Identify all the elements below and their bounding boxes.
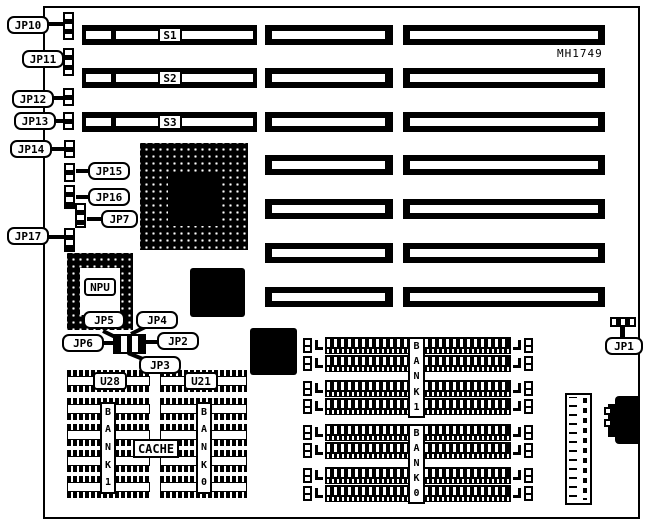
simm-bracket-right (513, 445, 521, 455)
vertical-label-char: N (201, 443, 207, 453)
simm-latch-left (303, 399, 312, 414)
vertical-label-char: N (413, 459, 419, 469)
vertical-label-char: N (413, 372, 419, 382)
keyboard-connector-pin (604, 407, 612, 415)
motherboard-diagram: MH1749 NPU U28 U21 BANK1 BANK0 CACHE BAN… (0, 0, 649, 527)
slot-stripe (410, 293, 598, 301)
power-pins-left (569, 397, 579, 501)
cpu-socket (140, 143, 248, 250)
power-connector (565, 393, 592, 505)
simm-latch-right (524, 399, 533, 414)
part-number: MH1749 (557, 47, 603, 60)
slot-stripe (272, 161, 385, 169)
vertical-label-char: A (413, 444, 419, 454)
slot-segment-right (403, 243, 605, 263)
vertical-label-char: 1 (413, 403, 419, 413)
slot-segment-mid (265, 155, 393, 175)
vertical-label-char: K (105, 461, 111, 471)
callout-jp5: JP5 (83, 311, 125, 329)
jumper-jp16 (64, 185, 75, 209)
slot-stripe (86, 31, 111, 39)
jumper-jp10 (63, 12, 74, 40)
simm-bracket-left (315, 383, 323, 393)
slot-stripe (410, 161, 598, 169)
simm-latch-right (524, 356, 533, 371)
callout-tail (47, 22, 64, 26)
callout-jp4: JP4 (136, 311, 178, 329)
slot-segment-right (403, 155, 605, 175)
jumper-jp11 (63, 48, 74, 76)
vertical-label-char: 1 (105, 478, 111, 488)
slot-stripe (86, 74, 111, 82)
simm-latch-left (303, 356, 312, 371)
slot-stripe (116, 74, 253, 82)
simm-latch-right (524, 468, 533, 483)
simm-bracket-left (315, 340, 323, 350)
callout-jp3: JP3 (139, 356, 181, 374)
npu-label: NPU (84, 278, 116, 296)
simm-latch-right (524, 443, 533, 458)
simm-bracket-right (513, 401, 521, 411)
slot-stripe (410, 205, 598, 213)
callout-jp1: JP1 (605, 337, 643, 355)
vertical-label-char: K (413, 388, 419, 398)
slot-stripe (410, 249, 598, 257)
vertical-label-char: 0 (413, 489, 419, 499)
simm-latch-right (524, 381, 533, 396)
simm-latch-left (303, 443, 312, 458)
callout-jp17: JP17 (7, 227, 49, 245)
callout-jp2: JP2 (157, 332, 199, 350)
simm-bank0-label: BANK0 (408, 424, 425, 504)
cache-bank0-label: BANK0 (196, 402, 212, 494)
vertical-label-char: K (413, 474, 419, 484)
callout-tail (87, 217, 102, 221)
simm-latch-right (524, 486, 533, 501)
vertical-label-char: A (201, 425, 207, 435)
jumper-jp14 (64, 140, 75, 158)
callout-jp13: JP13 (14, 112, 56, 130)
keyboard-connector (615, 396, 640, 444)
slot-segment-mid (265, 199, 393, 219)
simm-bracket-right (513, 358, 521, 368)
simm-bracket-left (315, 427, 323, 437)
cluster-cell (138, 344, 144, 352)
simm-latch-left (303, 486, 312, 501)
vertical-label-char: K (201, 461, 207, 471)
slot-segment-mid (265, 243, 393, 263)
simm-latch-right (524, 425, 533, 440)
slot-stripe (410, 31, 598, 39)
simm-bracket-right (513, 383, 521, 393)
callout-jp11: JP11 (22, 50, 64, 68)
slot-stripe (272, 293, 385, 301)
slot-segment-right (403, 199, 605, 219)
callout-jp14: JP14 (10, 140, 52, 158)
simm-latch-left (303, 381, 312, 396)
cpu-die (168, 173, 221, 226)
vertical-label-char: B (105, 408, 111, 418)
power-pins-right (583, 398, 587, 500)
slot-stripe (272, 249, 385, 257)
vertical-label-char: 0 (201, 478, 207, 488)
jumper-jp15 (64, 163, 75, 182)
simm-bracket-left (315, 445, 323, 455)
callout-jp12: JP12 (12, 90, 54, 108)
jumper-jp12 (63, 88, 74, 106)
chipset-chip (190, 268, 245, 317)
slot-stripe (116, 118, 253, 126)
callout-jp16: JP16 (88, 188, 130, 206)
slot-label-s1: S1 (158, 27, 182, 43)
simm-bank1-label: BANK1 (408, 337, 425, 418)
controller-chip (250, 328, 297, 375)
simm-bracket-left (315, 358, 323, 368)
callout-tail (47, 235, 65, 239)
simm-bracket-right (513, 470, 521, 480)
vertical-label-char: B (201, 408, 207, 418)
slot-stripe (272, 74, 385, 82)
slot-label-s3: S3 (158, 114, 182, 130)
slot-stripe (272, 31, 385, 39)
vertical-label-char: A (105, 425, 111, 435)
vertical-label-char: B (413, 429, 419, 439)
simm-latch-left (303, 468, 312, 483)
simm-bracket-left (315, 488, 323, 498)
slot-segment-mid (265, 112, 393, 132)
slot-stripe (410, 74, 598, 82)
vertical-label-char: B (413, 342, 419, 352)
slot-segment-mid (265, 25, 393, 45)
slot-label-s2: S2 (158, 70, 182, 86)
cache-bank1-label: BANK1 (100, 402, 116, 494)
simm-bracket-right (513, 340, 521, 350)
callout-jp15: JP15 (88, 162, 130, 180)
simm-latch-left (303, 425, 312, 440)
slot-stripe (116, 31, 253, 39)
simm-bracket-left (315, 470, 323, 480)
simm-bracket-left (315, 401, 323, 411)
simm-bracket-right (513, 427, 521, 437)
u28-label: U28 (93, 372, 127, 390)
slot-segment-right (403, 112, 605, 132)
callout-jp7: JP7 (101, 210, 138, 228)
slot-stripe (272, 205, 385, 213)
slot-segment-right (403, 287, 605, 307)
slot-stripe (86, 118, 111, 126)
vertical-label-char: N (105, 443, 111, 453)
slot-stripe (272, 118, 385, 126)
jumper-jp17 (64, 228, 75, 252)
u21-label: U21 (184, 372, 218, 390)
slot-segment-right (403, 68, 605, 88)
slot-segment-mid (265, 68, 393, 88)
simm-latch-right (524, 338, 533, 353)
jumper-jp7 (75, 203, 86, 228)
vertical-label-char: A (413, 357, 419, 367)
jumper-jp13 (63, 112, 74, 130)
simm-latch-left (303, 338, 312, 353)
simm-bracket-right (513, 488, 521, 498)
slot-segment-right (403, 25, 605, 45)
callout-jp10: JP10 (7, 16, 49, 34)
slot-stripe (410, 118, 598, 126)
callout-jp6: JP6 (62, 334, 104, 352)
slot-segment-mid (265, 287, 393, 307)
cache-label: CACHE (133, 439, 179, 458)
keyboard-connector-pin (604, 419, 612, 427)
